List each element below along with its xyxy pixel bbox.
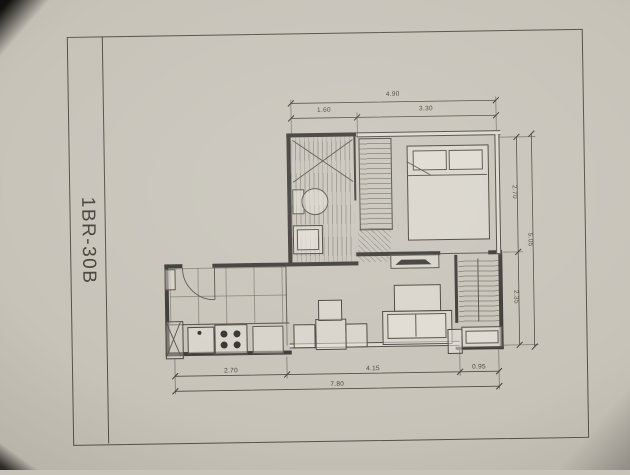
dim-bottom-left: 2.70	[224, 367, 238, 374]
pillow-left	[413, 150, 447, 171]
dining-chair-top	[318, 300, 342, 321]
dim-top-right: 3.30	[419, 105, 433, 112]
dining-table	[315, 319, 346, 350]
dim-bottom-right: 0.95	[472, 363, 486, 370]
dim-right-upper: 2.70	[511, 185, 518, 199]
sofa-seat	[387, 313, 446, 339]
dining-chair-right	[345, 323, 367, 347]
coffee-table	[394, 284, 441, 312]
dim-top-overall: 4.90	[386, 91, 400, 98]
service-shaft	[165, 321, 184, 359]
dim-right-lower: 2.35	[512, 290, 519, 304]
floor-plan: 4.90 1.60 3.30 2.70 2.35 5.05 2.70 4.15 …	[0, 0, 626, 5]
kitchen-column	[164, 269, 175, 290]
burner-3	[221, 341, 228, 348]
burner-1	[220, 330, 227, 337]
kitchen-faucet	[197, 331, 201, 335]
stove	[214, 324, 247, 355]
drawing-sheet: 1BR-30B	[0, 0, 630, 475]
kitchen-counter	[252, 326, 283, 354]
hall-floor	[358, 229, 392, 263]
bathroom-sink-basin	[297, 229, 319, 250]
tv-console	[390, 254, 439, 269]
wardrobe	[358, 138, 392, 231]
planter-inner	[465, 330, 498, 344]
plan-code-label: 1BR-30B	[76, 196, 99, 284]
dim-bottom-overall: 7.80	[330, 381, 344, 388]
kitchen-floor-tiles	[169, 267, 287, 326]
dining-chair-left	[293, 324, 315, 348]
burner-2	[233, 330, 240, 337]
dim-bottom-middle: 4.15	[366, 365, 380, 372]
planter-small	[447, 329, 462, 354]
pillow-right	[449, 149, 483, 170]
burner-4	[234, 341, 241, 348]
title-block: 1BR-30B	[67, 36, 109, 444]
dim-right-overall: 5.05	[526, 233, 533, 247]
dim-top-left: 1.60	[317, 107, 331, 114]
